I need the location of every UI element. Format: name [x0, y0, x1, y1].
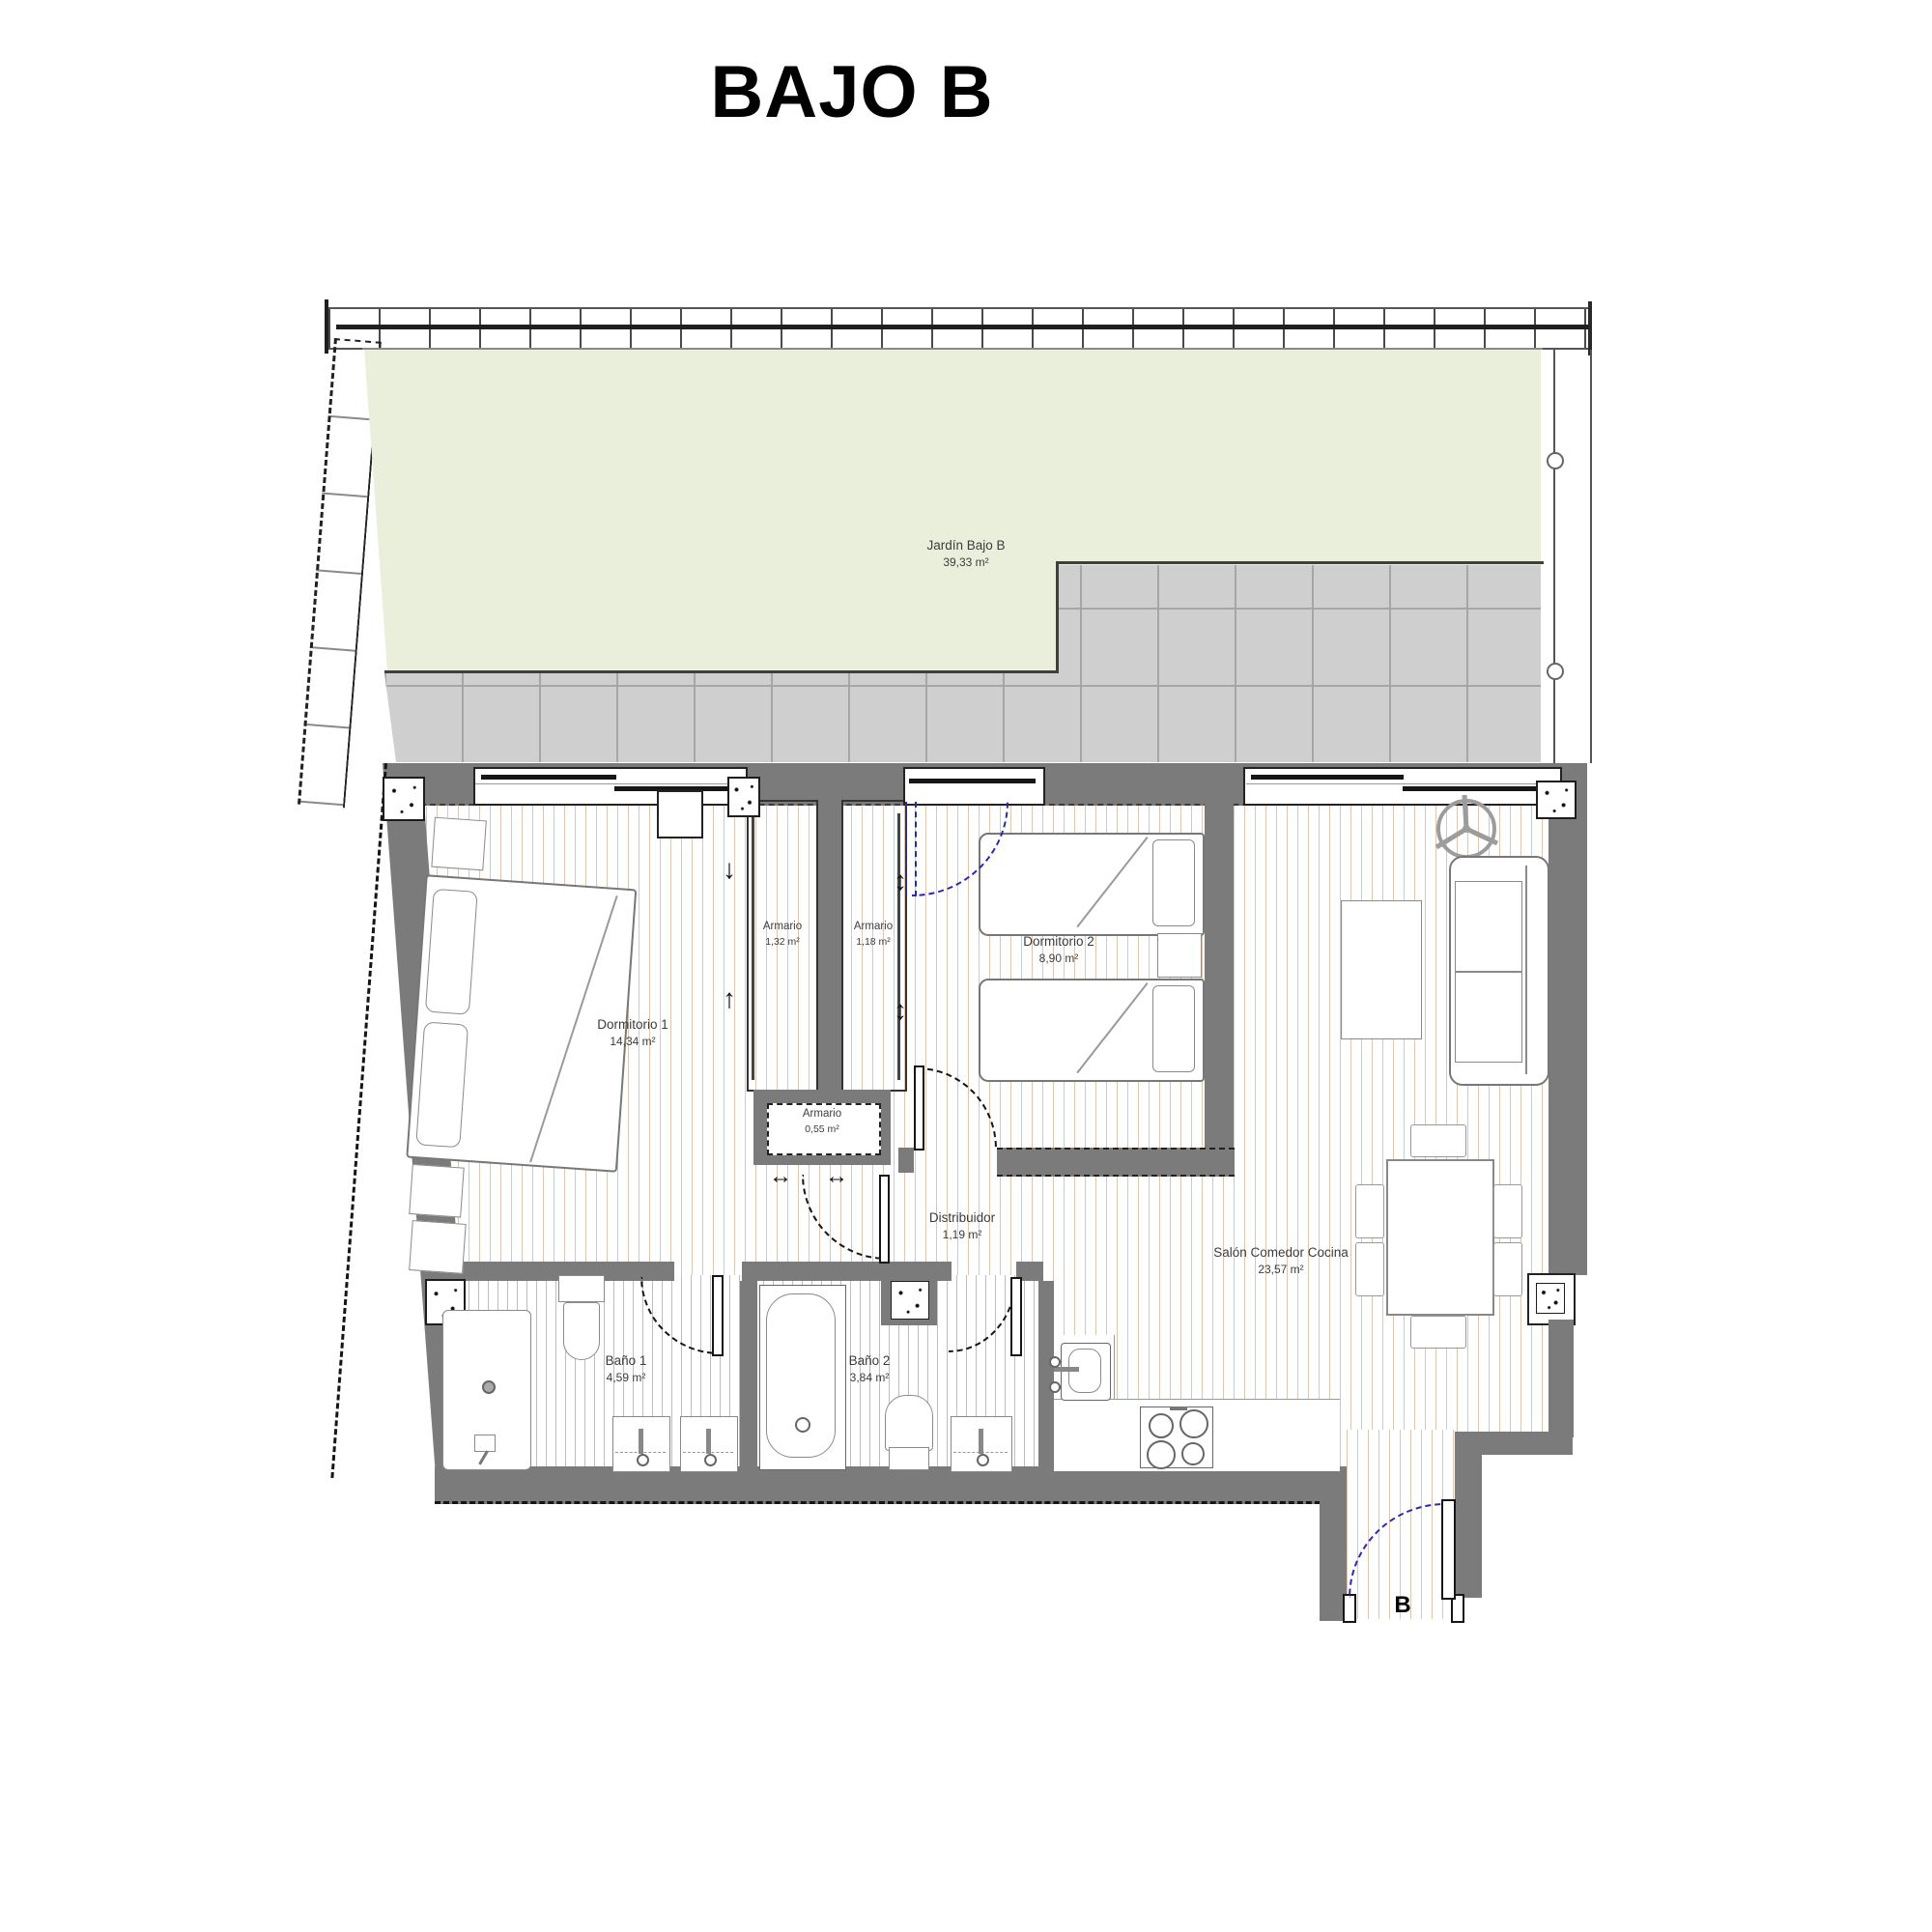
dining-chair: [1355, 1184, 1384, 1238]
dresser: [409, 1220, 466, 1274]
toilet-1-bowl: [563, 1302, 600, 1360]
wall-bottom-right: [1455, 1432, 1573, 1455]
wall-right-upper: [1548, 802, 1587, 1275]
basin-faucet-icon: [706, 1429, 711, 1454]
wall-left-dashed-edge: [330, 763, 387, 1478]
washbasin: [680, 1416, 738, 1472]
ceiling-fan-icon: [1430, 792, 1503, 866]
window-dorm2-pane: [909, 779, 1036, 783]
entrance-door-leaf: [1441, 1499, 1456, 1600]
wall-closet-mid: [816, 800, 843, 1092]
shower-fixture-icon: [474, 1435, 496, 1452]
washbasin: [612, 1416, 670, 1472]
bathtub-inner: [766, 1293, 836, 1458]
window-salon-pane-2: [1403, 786, 1553, 791]
pillow: [425, 889, 478, 1015]
sliding-arrow-up-icon: ↑: [723, 983, 736, 1014]
window-salon-pane-1: [1251, 775, 1404, 780]
kitchen-faucet-icon: [1054, 1367, 1079, 1372]
dining-chair: [1355, 1242, 1384, 1296]
nightstand: [409, 1164, 464, 1218]
shower-drain: [482, 1380, 496, 1394]
washbasin: [951, 1416, 1012, 1472]
wall-bath-mid: [740, 1281, 757, 1478]
right-railing-inner: [1553, 350, 1555, 763]
bathtub-drain: [795, 1417, 810, 1433]
dining-table: [1386, 1159, 1494, 1316]
door-leaf-dorm1: [879, 1175, 890, 1264]
sliding-arrow-vert-icon: ↕: [894, 866, 907, 896]
window-dorm1-pane-1: [481, 775, 616, 780]
label-dormitorio1: Dormitorio 114,34 m²: [597, 1016, 668, 1049]
tiles-edge-vert: [1056, 561, 1059, 673]
wall-dorm2-right: [1205, 802, 1234, 1173]
closet1-door-rail: [752, 813, 754, 1080]
dining-chair: [1410, 1124, 1466, 1157]
sliding-arrow-horiz-icon: ↔: [769, 1163, 792, 1190]
burner: [1179, 1409, 1208, 1438]
burner: [1147, 1440, 1176, 1469]
dining-chair: [1410, 1316, 1466, 1349]
niche-column: [1536, 1283, 1565, 1314]
wall-bottom: [435, 1466, 1347, 1504]
shower-arm: [478, 1450, 489, 1464]
wall-right-lower: [1548, 1320, 1574, 1437]
toilet-1-cistern: [558, 1275, 605, 1302]
sink-knob: [1049, 1381, 1061, 1393]
door-leaf-bano2: [1010, 1277, 1022, 1356]
single-bed-2: [979, 979, 1205, 1082]
wall-kitchen-bath: [1038, 1281, 1054, 1480]
column-top-right: [1536, 781, 1577, 819]
window-dorm1-track: [475, 783, 742, 784]
label-bano2: Baño 23,84 m²: [849, 1352, 891, 1385]
wall-corridor-right: [1455, 1453, 1482, 1598]
railing-node-2: [1547, 663, 1564, 680]
nightstand: [431, 817, 486, 871]
bed-fold-line: [1076, 982, 1148, 1073]
single-bed-1: [979, 833, 1205, 936]
pillow: [1152, 985, 1195, 1072]
fence-rail-top: [328, 307, 1589, 309]
sofa-seat-cushion: [1455, 881, 1522, 972]
kitchen-sink: [1061, 1343, 1111, 1401]
nightstand: [1157, 933, 1202, 978]
pillow: [415, 1021, 469, 1148]
fence-end-post-left: [325, 299, 328, 354]
dorm1-furniture-group: [393, 816, 657, 1292]
right-railing-outer: [1590, 350, 1592, 763]
hob-control: [1170, 1406, 1187, 1410]
label-armario3: Armario0,55 m²: [803, 1107, 841, 1136]
tiles-edge-top-left: [384, 670, 1059, 673]
basin-faucet-base: [637, 1454, 649, 1466]
basin-faucet-icon: [639, 1429, 643, 1454]
basin-faucet-base: [704, 1454, 717, 1466]
floor-plan: BAJO B: [0, 0, 1932, 1932]
sliding-arrow-vert-icon: ↕: [894, 995, 907, 1026]
sliding-arrow-down-icon: ↓: [723, 854, 736, 885]
tiles-edge-top-right: [1056, 561, 1544, 564]
wall-dorm2-bottom: [997, 1148, 1235, 1177]
label-salon: Salón Comedor Cocina23,57 m²: [1213, 1244, 1349, 1277]
burner: [1149, 1413, 1174, 1438]
sofa-back-line: [1525, 866, 1527, 1074]
garden-top-edge: [362, 348, 1543, 350]
bed-fold-line: [1076, 837, 1148, 927]
wall-dorm2-bottom-stub: [898, 1148, 914, 1173]
basin-faucet-base: [977, 1454, 989, 1466]
fence-rail-mid: [336, 325, 1589, 329]
dining-chair: [1493, 1242, 1522, 1296]
window-dorm2-door: [903, 767, 1045, 806]
hob: [1140, 1406, 1213, 1468]
toilet-2-bowl: [885, 1395, 933, 1451]
entrance-label: B: [1394, 1592, 1410, 1619]
toilet-2-base: [889, 1447, 929, 1470]
label-bano1: Baño 14,59 m²: [606, 1352, 647, 1385]
label-jardin: Jardín Bajo B39,33 m²: [926, 537, 1005, 570]
label-armario1: Armario1,32 m²: [763, 920, 802, 949]
fence-end-post-right: [1588, 301, 1592, 355]
column-top-left: [383, 777, 425, 821]
column-top-mid: [727, 777, 760, 817]
sofa: [1449, 856, 1549, 1086]
pillow: [1152, 839, 1195, 926]
coffee-table: [1341, 900, 1422, 1039]
basin-faucet-icon: [979, 1429, 983, 1454]
window-salon-track: [1246, 783, 1555, 784]
label-dormitorio2: Dormitorio 28,90 m²: [1023, 933, 1094, 966]
dining-chair: [1493, 1184, 1522, 1238]
burner: [1181, 1442, 1205, 1465]
plan-title: BAJO B: [710, 50, 993, 134]
sofa-seat-cushion: [1455, 972, 1522, 1063]
shower-tray: [442, 1310, 531, 1470]
sliding-arrow-horiz-icon: ↔: [825, 1163, 848, 1190]
door-leaf-dorm2: [914, 1065, 924, 1151]
railing-node-1: [1547, 452, 1564, 469]
bathtub: [759, 1285, 846, 1470]
bath2-shaft: [891, 1281, 929, 1320]
label-distribuidor: Distribuidor1,19 m²: [929, 1209, 995, 1242]
closet2-door-rail: [897, 813, 900, 1080]
door-leaf-bano1: [712, 1275, 724, 1356]
sink-knob: [1049, 1356, 1061, 1368]
top-wall-shaft: [657, 790, 703, 838]
corridor-jamb-left: [1343, 1594, 1356, 1623]
label-armario2: Armario1,18 m²: [854, 920, 893, 949]
